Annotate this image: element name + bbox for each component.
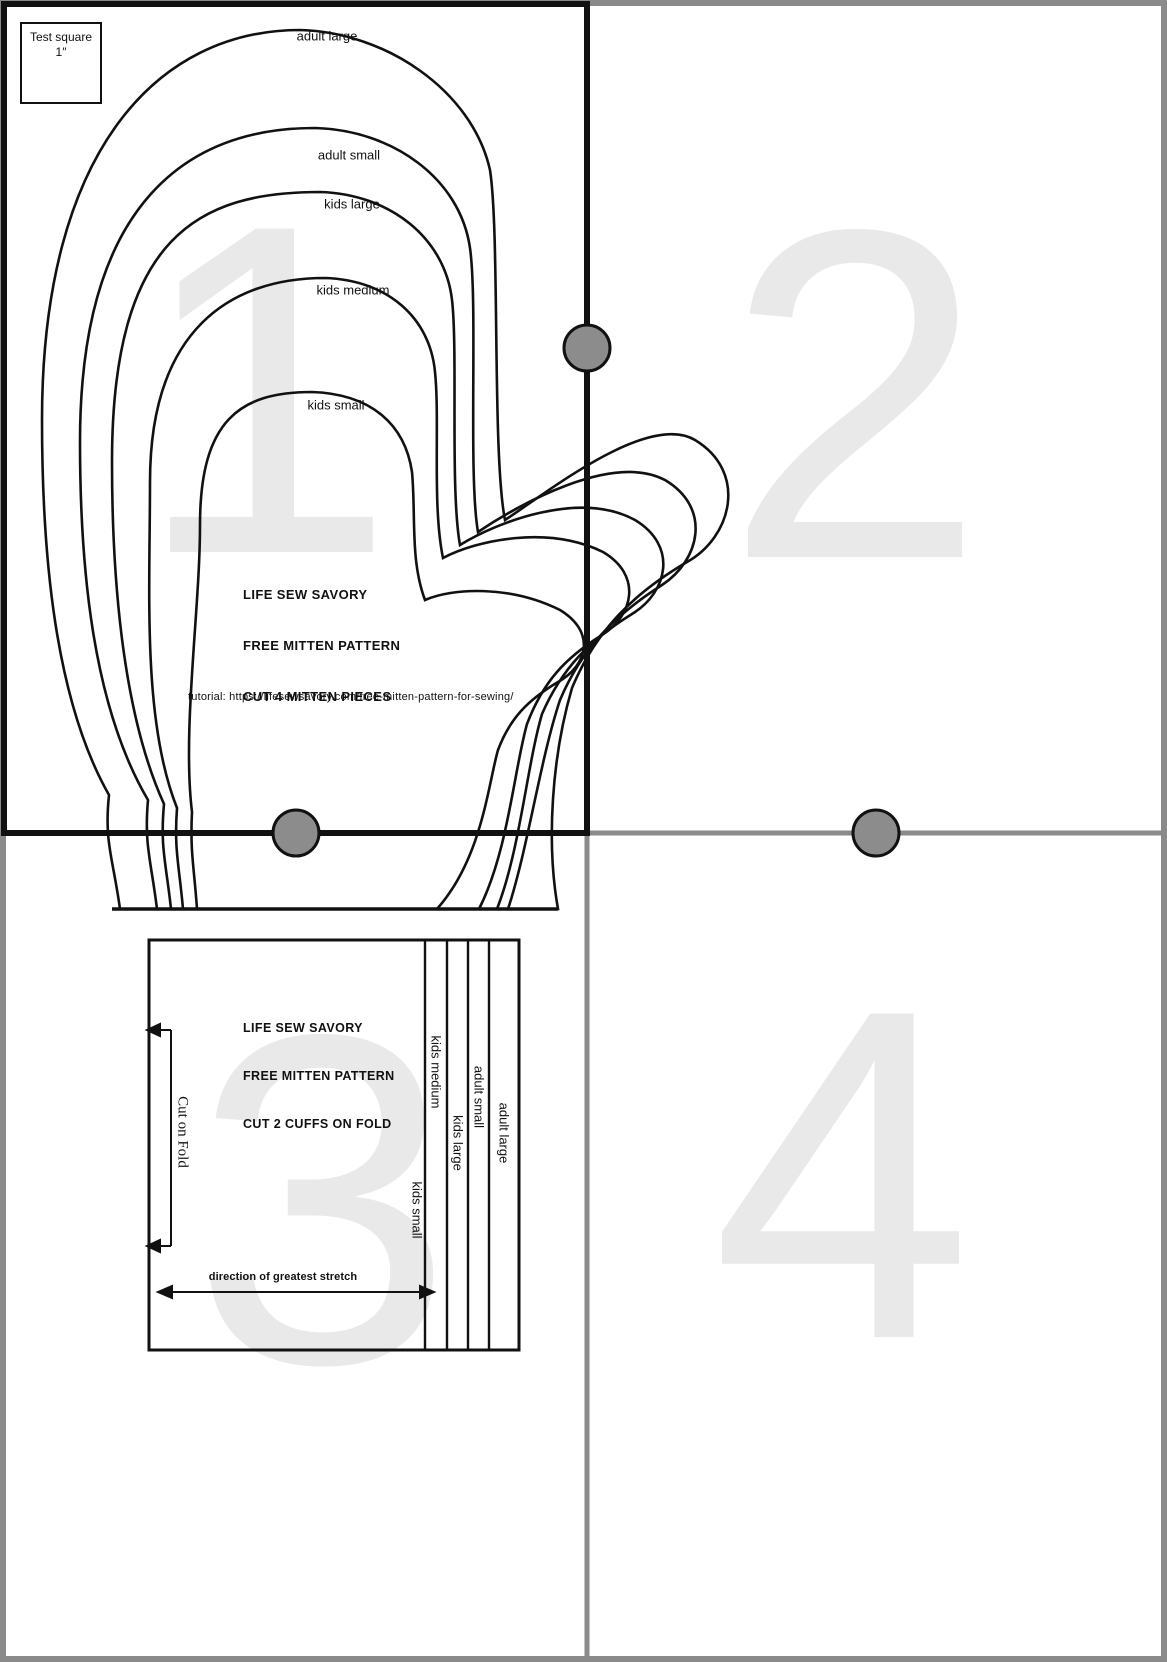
registration-dot-page2-page4 <box>853 810 899 856</box>
cuff-size-label-kids-large: kids large <box>451 1115 466 1171</box>
mitten-brand-line-2: FREE MITTEN PATTERN <box>243 637 400 654</box>
cuff-size-label-kids-medium: kids medium <box>429 1036 444 1109</box>
mitten-brand-line-1: LIFE SEW SAVORY <box>243 586 400 603</box>
test-square: Test square 1″ <box>20 22 102 104</box>
cut-on-fold-bracket <box>147 1024 171 1252</box>
mitten-outline-kids-large <box>112 192 663 909</box>
mitten-outline-adult-large <box>42 30 728 909</box>
cuff-size-label-adult-large: adult large <box>497 1103 512 1164</box>
cuff-size-label-kids-small: kids small <box>410 1181 425 1238</box>
cut-on-fold-label: Cut on Fold <box>174 1096 191 1168</box>
cuff-brand-line-3: CUT 2 CUFFS ON FOLD <box>243 1116 395 1132</box>
registration-dot-right-of-page1 <box>564 325 610 371</box>
test-square-size: 1″ <box>22 45 100 60</box>
stretch-direction-label: direction of greatest stretch <box>209 1271 357 1283</box>
pattern-sheet: 1 2 3 4 <box>0 0 1167 1662</box>
cuff-brand-line-1: LIFE SEW SAVORY <box>243 1020 395 1036</box>
test-square-label: Test square <box>22 30 100 45</box>
pattern-graphics <box>0 0 1167 1662</box>
cuff-brand-text: LIFE SEW SAVORY FREE MITTEN PATTERN CUT … <box>243 988 395 1164</box>
registration-dot-bottom-of-page1 <box>273 810 319 856</box>
mitten-size-label-kids-medium: kids medium <box>317 283 390 298</box>
mitten-size-label-kids-large: kids large <box>324 197 380 212</box>
mitten-size-label-adult-large: adult large <box>297 29 358 44</box>
stretch-arrow <box>158 1286 434 1298</box>
mitten-size-label-kids-small: kids small <box>307 398 364 413</box>
stretch-arrowhead-left <box>158 1286 172 1298</box>
mitten-size-label-adult-small: adult small <box>318 148 380 163</box>
mitten-brand-text: LIFE SEW SAVORY FREE MITTEN PATTERN CUT … <box>243 552 400 739</box>
mitten-outlines <box>42 30 728 909</box>
cuff-brand-line-2: FREE MITTEN PATTERN <box>243 1068 395 1084</box>
tutorial-url: tutorial: https://lifesewsavory.com/free… <box>188 691 514 703</box>
cuff-size-label-adult-small: adult small <box>472 1066 487 1128</box>
stretch-arrowhead-right <box>420 1286 434 1298</box>
